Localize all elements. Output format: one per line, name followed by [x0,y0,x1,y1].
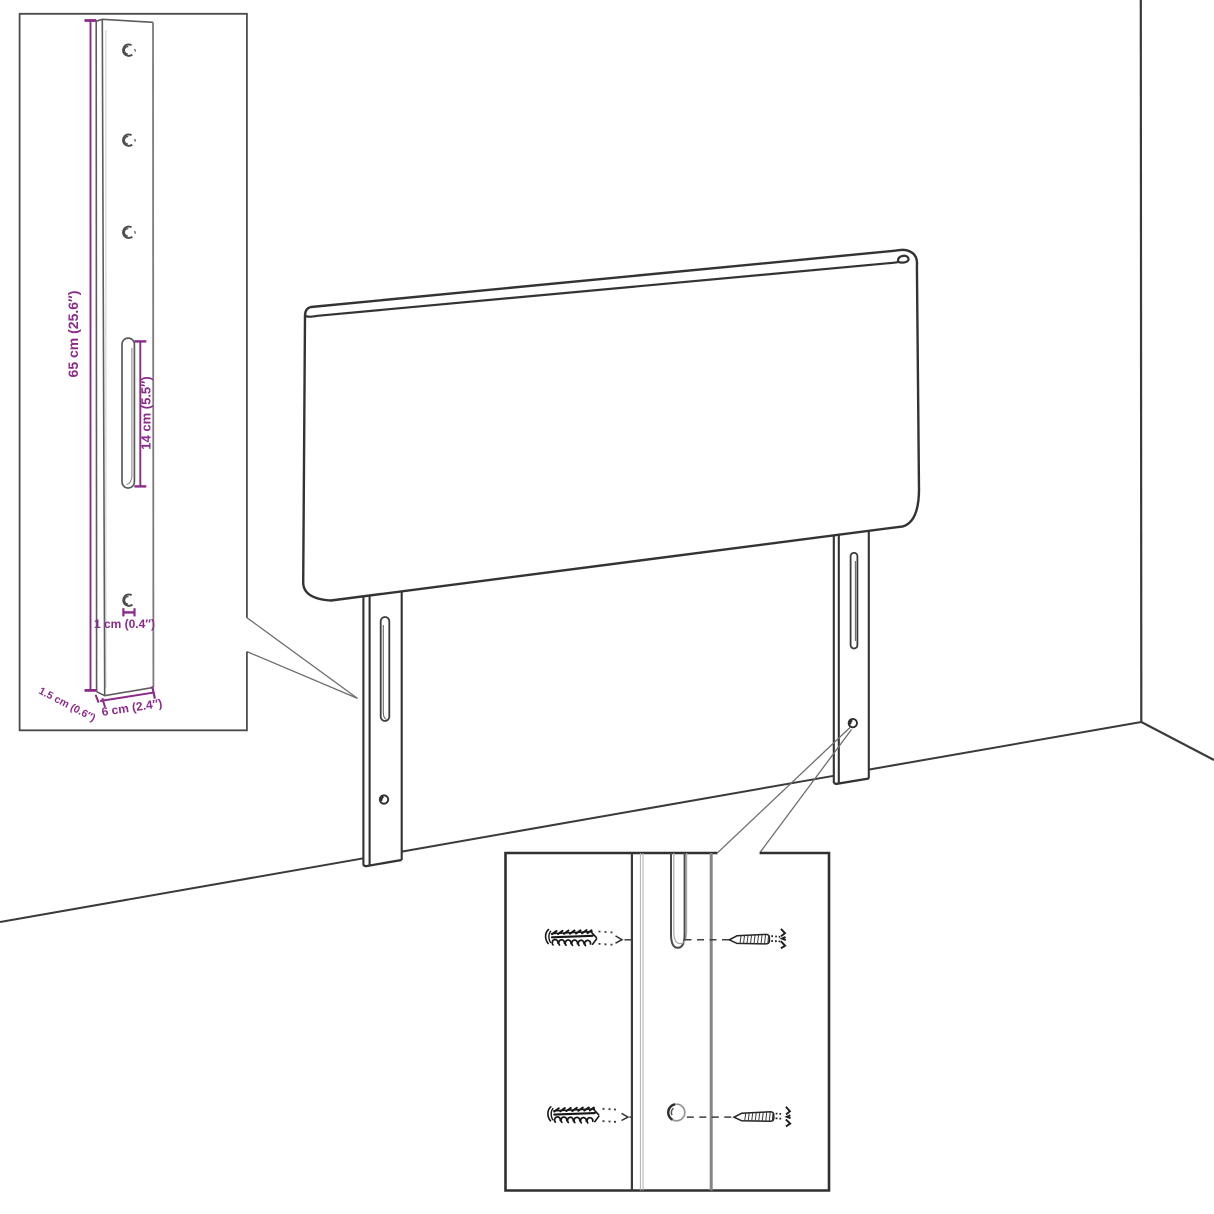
svg-text:65 cm (25.6″): 65 cm (25.6″) [65,291,81,378]
svg-text:1 cm (0.4″): 1 cm (0.4″) [94,617,155,631]
svg-text:14 cm (5.5″): 14 cm (5.5″) [139,376,154,449]
